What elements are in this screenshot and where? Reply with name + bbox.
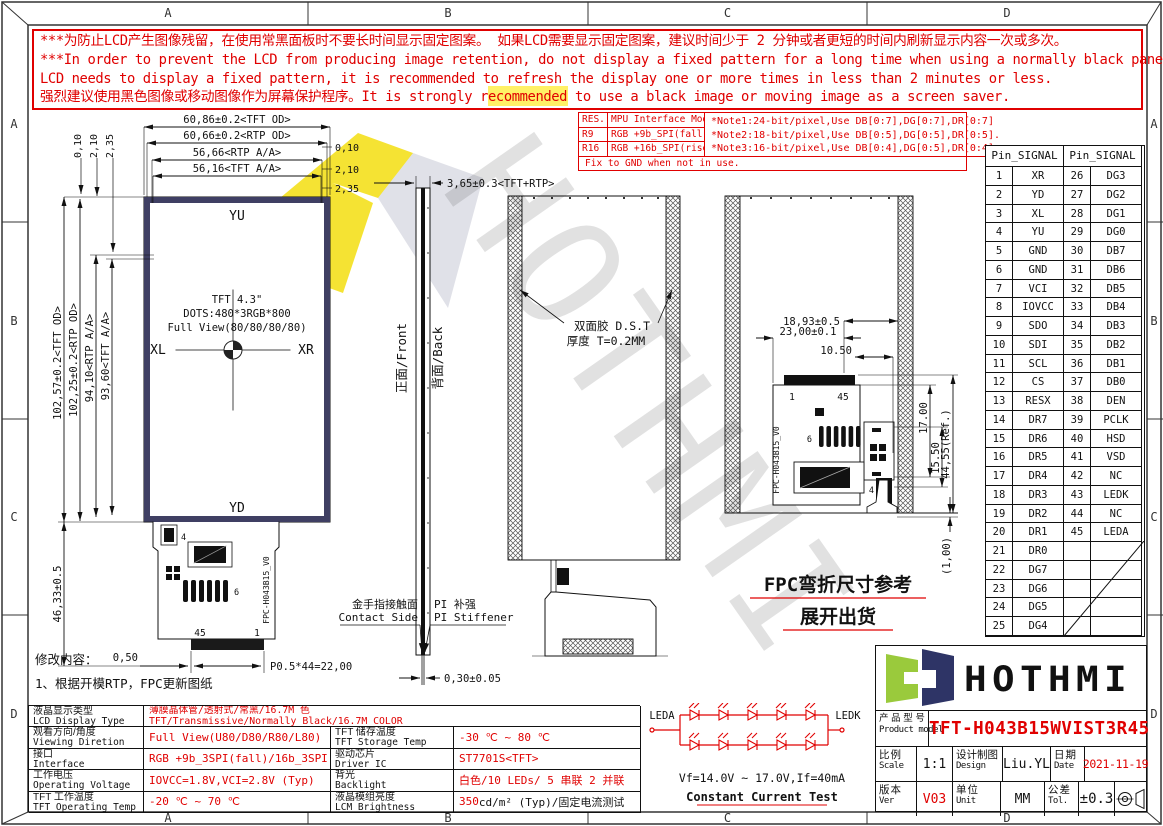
grid-col-label-top: C (720, 5, 736, 21)
pin-cell-right (1064, 561, 1091, 580)
pin-cell-right (1091, 617, 1142, 636)
pin-cell-right (1091, 598, 1142, 617)
tolerance-label: 公差Tol. (1044, 782, 1078, 816)
contact-side-label: Contact Side (339, 611, 418, 624)
dim-label: 10.50 (820, 345, 852, 357)
unit-label: 单位Unit (952, 782, 1000, 816)
label-xr: XR (298, 343, 314, 358)
pin-cell-left: GND (1013, 242, 1064, 261)
mode-desc: RGB +16b_SPI(rise) (608, 142, 705, 157)
pin-cell-right (1091, 561, 1142, 580)
note-line: *Note1:24-bit/pixel,Use DB[0:7],DG[0:7],… (711, 115, 1000, 129)
pin-cell-left: SDI (1013, 336, 1064, 355)
dim-label: 94,10<RTP A/A> (84, 314, 96, 403)
pin-cell-right: 33 (1064, 298, 1091, 317)
comp4-label: 4 (869, 486, 874, 496)
dim-label: 60,66±0.2<RTP OD> (183, 130, 290, 142)
mode-key: RES. (579, 113, 608, 128)
pin-cell-left: 4 (986, 223, 1013, 242)
pi-stiffener-label: PI 补强 (434, 598, 476, 611)
pin-cell-left: 3 (986, 205, 1013, 224)
fpc-pin45-label: 45 (194, 628, 205, 639)
comp6-label: 6 (807, 435, 812, 445)
pin-cell-right: VSD (1091, 448, 1142, 467)
pin-cell-right: DG3 (1091, 167, 1142, 186)
pin-cell-left: 21 (986, 542, 1013, 561)
tolerance-value: ±0.3 (1078, 782, 1114, 816)
pin-cell-right: DB4 (1091, 298, 1142, 317)
pin-cell-left: 14 (986, 411, 1013, 430)
pin-cell-right: DB7 (1091, 242, 1142, 261)
dim-label: 46,33±0.5 (52, 566, 64, 623)
grid-row-label-left: A (6, 116, 22, 132)
pi-stiffener-label: PI Stiffener (434, 611, 514, 624)
pin-cell-left: 25 (986, 617, 1013, 636)
pin-cell-left: DG6 (1013, 580, 1064, 599)
design-label: 设计制图Design (952, 747, 1002, 781)
grid-row-label-left: C (6, 509, 22, 525)
spec-value-viewing: Full View(U80/D80/R80/L80) (144, 727, 331, 748)
pin-cell-left: CS (1013, 373, 1064, 392)
pin-cell-left: YD (1013, 186, 1064, 205)
pin-cell-right: 28 (1064, 205, 1091, 224)
grid-col-label-bottom: C (720, 810, 736, 826)
pin-cell-right: DG1 (1091, 205, 1142, 224)
fpc-bend-note-line1: FPC弯折尺寸参考 (764, 573, 912, 596)
pin-cell-right: DG0 (1091, 223, 1142, 242)
warning-line-cn2: 强烈建议使用黑色图像或移动图像作为屏幕保护程序。It is strongly r… (40, 88, 1135, 107)
spec-table: 液晶显示类型LCD Display Type 薄膜晶体管/透射式/常黑/16.7… (28, 705, 640, 812)
pin-cell-left: 15 (986, 430, 1013, 449)
grid-col-label-top: A (160, 5, 176, 21)
brightness-condition: cd/m² (Typ)/固定电流测试 (479, 794, 624, 810)
pin-cell-right: 31 (1064, 261, 1091, 280)
pin-cell-left: GND (1013, 261, 1064, 280)
pin-cell-right: DB0 (1091, 373, 1142, 392)
pin-cell-left: DR7 (1013, 411, 1064, 430)
dim-label: 0,10 (335, 143, 359, 154)
dim-label: 17.00 (918, 402, 930, 434)
pin-cell-right: 45 (1064, 523, 1091, 542)
back-face-label: 背面/Back (430, 326, 445, 389)
pin-cell-left: 11 (986, 355, 1013, 374)
pin-cell-left: 1 (986, 167, 1013, 186)
pin-cell-right (1064, 580, 1091, 599)
logo-right-shape (922, 649, 954, 706)
label-xl: XL (150, 343, 166, 358)
pin-cell-right: DG2 (1091, 186, 1142, 205)
pin-cell-left: VCI (1013, 280, 1064, 299)
mode-key: R9 (579, 128, 608, 143)
pin-cell-right: 38 (1064, 392, 1091, 411)
front-view: YU YD XL XR TFT 4.3" DOTS:480*3RGB*800 F… (144, 197, 330, 650)
fpc-bend-note-line2: 展开出货 (800, 605, 876, 628)
pin-cell-left: 12 (986, 373, 1013, 392)
pin-cell-right: PCLK (1091, 411, 1142, 430)
spec-label: 液晶模组亮度LCM Brightness (331, 792, 454, 813)
spec-label: 背光Backlight (331, 770, 454, 791)
retention-warning-box: ***为防止LCD产生图像残留，在使用常黑面板时不要长时间显示固定图案。 如果L… (32, 29, 1143, 110)
dim-label: 0,50 (113, 652, 138, 664)
dim-label: (1,00) (941, 537, 953, 575)
pin-cell-left: 6 (986, 261, 1013, 280)
revision-title: 修改内容： (35, 652, 98, 667)
dim-label: 2,10 (335, 165, 359, 176)
grid-row-label-right: D (1146, 706, 1162, 722)
dim-label: P0.5*44=22,00 (270, 661, 352, 673)
pin-cell-right: 30 (1064, 242, 1091, 261)
grid-row-label-right: B (1146, 313, 1162, 329)
brand-text: HOTHMI (964, 660, 1132, 700)
mode-desc: RGB +9b_SPI(fall) (608, 128, 705, 143)
pin-cell-left: 8 (986, 298, 1013, 317)
projection-symbol-cell (1114, 782, 1146, 816)
pin-cell-right: NC (1091, 467, 1142, 486)
spec-value-brightness: 350 cd/m² (Typ)/固定电流测试 (454, 792, 641, 813)
pin-cell-right: DB6 (1091, 261, 1142, 280)
spec-label: 工作电压Operating Voltage (29, 770, 144, 791)
pin-cell-left: 5 (986, 242, 1013, 261)
spec-label: 观看方向/角度Viewing Diretion (29, 727, 144, 748)
pin-cell-left: SCL (1013, 355, 1064, 374)
warning-line-cn: ***为防止LCD产生图像残留，在使用常黑面板时不要长时间显示固定图案。 如果L… (40, 32, 1135, 51)
pin-cell-left: 24 (986, 598, 1013, 617)
dst-thickness-label: 厚度 T=0.2MM (567, 334, 645, 348)
pin-cell-right (1064, 598, 1091, 617)
third-angle-projection-icon (1116, 784, 1146, 814)
version-label: 版本Ver (876, 782, 916, 816)
grid-col-label-bottom: D (999, 810, 1015, 826)
pin-cell-right: 29 (1064, 223, 1091, 242)
scale-label: 比例Scale (876, 747, 916, 781)
pin-cell-right: DB3 (1091, 317, 1142, 336)
spec-value-backlight: 白色/10 LEDs/ 5 串联 2 并联 (454, 770, 641, 791)
spec-value-voltage: IOVCC=1.8V,VCI=2.8V (Typ) (144, 770, 331, 791)
pin-cell-right: 37 (1064, 373, 1091, 392)
note-line: *Note2:18-bit/pixel,Use DB[0:5],DG[0:5],… (711, 129, 1000, 143)
pin-cell-left: DR2 (1013, 505, 1064, 524)
led-cathode-label: LEDK (835, 710, 861, 722)
pin-cell-left: RESX (1013, 392, 1064, 411)
panel-dots-text: DOTS:480*3RGB*800 (183, 308, 290, 320)
pin-cell-left: 13 (986, 392, 1013, 411)
pin-cell-left: 17 (986, 467, 1013, 486)
led-backlight-circuit: LEDA LEDK Vf=14.0V ~ 17.0V,If=40mA Const… (640, 703, 875, 810)
spec-label: TFT 储存温度TFT Storage Temp (331, 727, 454, 748)
pin-cell-right: 40 (1064, 430, 1091, 449)
dim-label: 102,25±0.2<RTP OD> (68, 303, 80, 417)
pin-cell-left: XR (1013, 167, 1064, 186)
revision-item: 1、根据开模RTP，FPC更新图纸 (35, 676, 213, 691)
pin-cell-left: 23 (986, 580, 1013, 599)
title-block: HOTHMI 产 品 型 号 Product model TFT-H043B15… (875, 645, 1147, 812)
contact-side-label: 金手指接触面 (352, 597, 418, 611)
led-diodes (689, 703, 815, 750)
grid-col-label-top: D (999, 5, 1015, 21)
dim-label: 23,00±0.1 (780, 326, 837, 338)
warning-line-en1: ***In order to prevent the LCD from prod… (40, 51, 1135, 70)
fpc-pin45-label: 45 (837, 392, 848, 403)
pin-cell-right: DEN (1091, 392, 1142, 411)
pin-cell-left: DR5 (1013, 448, 1064, 467)
pin-cell-left: DG7 (1013, 561, 1064, 580)
grid-col-label-top: B (440, 5, 456, 21)
pin-cell-right (1064, 542, 1091, 561)
pin-cell-right (1091, 542, 1142, 561)
dim-label: 2,35 (335, 184, 359, 195)
scale-value: 1:1 (916, 747, 952, 781)
pin-cell-left: 22 (986, 561, 1013, 580)
pin-cell-right: 26 (1064, 167, 1091, 186)
label-yd: YD (229, 501, 245, 516)
pin-cell-left: DR0 (1013, 542, 1064, 561)
pin-cell-right: 32 (1064, 280, 1091, 299)
logo-left-shape (886, 654, 918, 703)
dim-label: 3,65±0.3<TFT+RTP> (447, 178, 554, 190)
spec-label: 液晶显示类型LCD Display Type (29, 706, 144, 727)
pin-cell-left: 10 (986, 336, 1013, 355)
pixel-format-notes: *Note1:24-bit/pixel,Use DB[0:7],DG[0:7],… (705, 113, 1002, 157)
grid-row-label-left: B (6, 313, 22, 329)
pin-cell-left: SDO (1013, 317, 1064, 336)
dim-label: 2,10 (89, 134, 100, 158)
grid-row-label-right: C (1146, 509, 1162, 525)
spec-value-display-type: 薄膜晶体管/透射式/常黑/16.7M 色TFT/Transmissive/Nor… (144, 706, 641, 727)
pin-signal-table: Pin_SIGNAL Pin_SIGNAL 1XR26DG32YD27DG23X… (985, 145, 1145, 637)
pin-cell-left: 7 (986, 280, 1013, 299)
fpc-name-label: FPC-H043B15_V0 (262, 556, 271, 624)
pin-cell-right: LEDA (1091, 523, 1142, 542)
pin-cell-left: IOVCC (1013, 298, 1064, 317)
dim-label: 44,55(Ref.) (940, 409, 952, 479)
panel-view-text: Full View(80/80/80/80) (167, 322, 306, 334)
pin-cell-right: 42 (1064, 467, 1091, 486)
pin-cell-right (1091, 580, 1142, 599)
mode-desc: MPU Interface Mode (608, 113, 705, 128)
pin-cell-right: 43 (1064, 486, 1091, 505)
pin-cell-left: 9 (986, 317, 1013, 336)
hothmi-logo: HOTHMI (876, 646, 1144, 708)
pin-cell-left: DR1 (1013, 523, 1064, 542)
pin-cell-left: DR3 (1013, 486, 1064, 505)
dim-label: 0,30±0.05 (444, 673, 501, 685)
fpc-pin1-label: 1 (254, 628, 260, 639)
fpc-pin1-label: 1 (789, 392, 795, 403)
comp6-label: 6 (234, 588, 239, 598)
dst-label: 双面胶 D.S.T (574, 319, 650, 333)
pin-cell-right: 34 (1064, 317, 1091, 336)
spec-label: 驱动芯片Driver IC (331, 749, 454, 770)
technical-drawing: HOTHMI YU YD XL XR TFT 4.3" DOTS:480*3RG… (28, 108, 980, 708)
led-vf-spec: Vf=14.0V ~ 17.0V,If=40mA (679, 771, 845, 785)
product-model-value: TFT-H043B15WVIST3R45 (928, 711, 1150, 746)
pin-cell-left: XL (1013, 205, 1064, 224)
led-anode-label: LEDA (649, 710, 675, 722)
pin-cell-left: 19 (986, 505, 1013, 524)
pin-cell-left: 20 (986, 523, 1013, 542)
spec-label: 接口Interface (29, 749, 144, 770)
pin-cell-left: DR4 (1013, 467, 1064, 486)
pin-cell-right: DB5 (1091, 280, 1142, 299)
pin-cell-right: 44 (1064, 505, 1091, 524)
pin-cell-left: DR6 (1013, 430, 1064, 449)
dim-label: 102,57±0.2<TFT OD> (52, 306, 64, 420)
pin-cell-right: LEDK (1091, 486, 1142, 505)
dim-label: 60,86±0.2<TFT OD> (183, 114, 290, 126)
fpc-name-label: FPC-H043B15_V0 (772, 426, 781, 494)
dim-label: 56,66<RTP A/A> (193, 147, 282, 159)
pin-cell-left: YU (1013, 223, 1064, 242)
note-line: *Note3:16-bit/pixel,Use DB[0:4],DG[0:5],… (711, 142, 1000, 156)
dim-label: 2,35 (105, 134, 116, 158)
pin-cell-left: 16 (986, 448, 1013, 467)
brand-logo-cell: HOTHMI (876, 646, 1146, 713)
front-face-label: 正面/Front (394, 323, 409, 393)
warning-line-en2: LCD needs to display a fixed pattern, it… (40, 70, 1135, 89)
brightness-value: 350 (459, 795, 479, 808)
grid-col-label-bottom: A (160, 810, 176, 826)
led-test-note: Constant Current Test (686, 790, 838, 804)
grid-col-label-bottom: B (440, 810, 456, 826)
spec-label: TFT 工作温度TFT Operating Temp (29, 792, 144, 813)
spec-value-storage-temp: -30 ℃ ~ 80 ℃ (454, 727, 641, 748)
pin-table-header-left: Pin_SIGNAL (986, 146, 1064, 167)
pin-cell-right: DB1 (1091, 355, 1142, 374)
spec-value-driver-ic: ST7701S<TFT> (454, 749, 641, 770)
pin-cell-right: 41 (1064, 448, 1091, 467)
grid-row-label-right: A (1146, 116, 1162, 132)
pin-cell-right: NC (1091, 505, 1142, 524)
pin-cell-left: 18 (986, 486, 1013, 505)
label-yu: YU (229, 209, 245, 224)
pin-cell-right: HSD (1091, 430, 1142, 449)
pin-cell-right: 27 (1064, 186, 1091, 205)
pin-cell-left: 2 (986, 186, 1013, 205)
version-value: V03 (916, 782, 952, 816)
mode-key: R16 (579, 142, 608, 157)
pin-cell-left: DG4 (1013, 617, 1064, 636)
dim-label: 93,60<TFT A/A> (100, 312, 112, 401)
designer-value: Liu.YL (1002, 747, 1050, 781)
dim-label: 56,16<TFT A/A> (193, 163, 282, 175)
dim-label: 0,10 (73, 134, 84, 158)
grid-row-label-left: D (6, 706, 22, 722)
comp4-label: 4 (181, 533, 186, 543)
pin-cell-left: DG5 (1013, 598, 1064, 617)
pin-cell-right: 36 (1064, 355, 1091, 374)
panel-size-text: TFT 4.3" (212, 294, 263, 306)
pin-cell-right: DB2 (1091, 336, 1142, 355)
pin-cell-right: 35 (1064, 336, 1091, 355)
pin-cell-right (1064, 617, 1091, 636)
spec-value-interface: RGB +9b_3SPI(fall)/16b_3SPI(rise) (144, 749, 331, 770)
pin-table-header-right: Pin_SIGNAL (1064, 146, 1142, 167)
product-model-label: 产 品 型 号 Product model (876, 711, 928, 746)
date-label: 日期Date (1050, 747, 1084, 781)
pin-cell-right: 39 (1064, 411, 1091, 430)
date-value: 2021-11-19 (1084, 747, 1146, 781)
interface-mode-table: RES. MPU Interface Mode *Note1:24-bit/pi… (578, 112, 967, 171)
mode-footer: Fix to GND when not in use. (579, 157, 1002, 170)
